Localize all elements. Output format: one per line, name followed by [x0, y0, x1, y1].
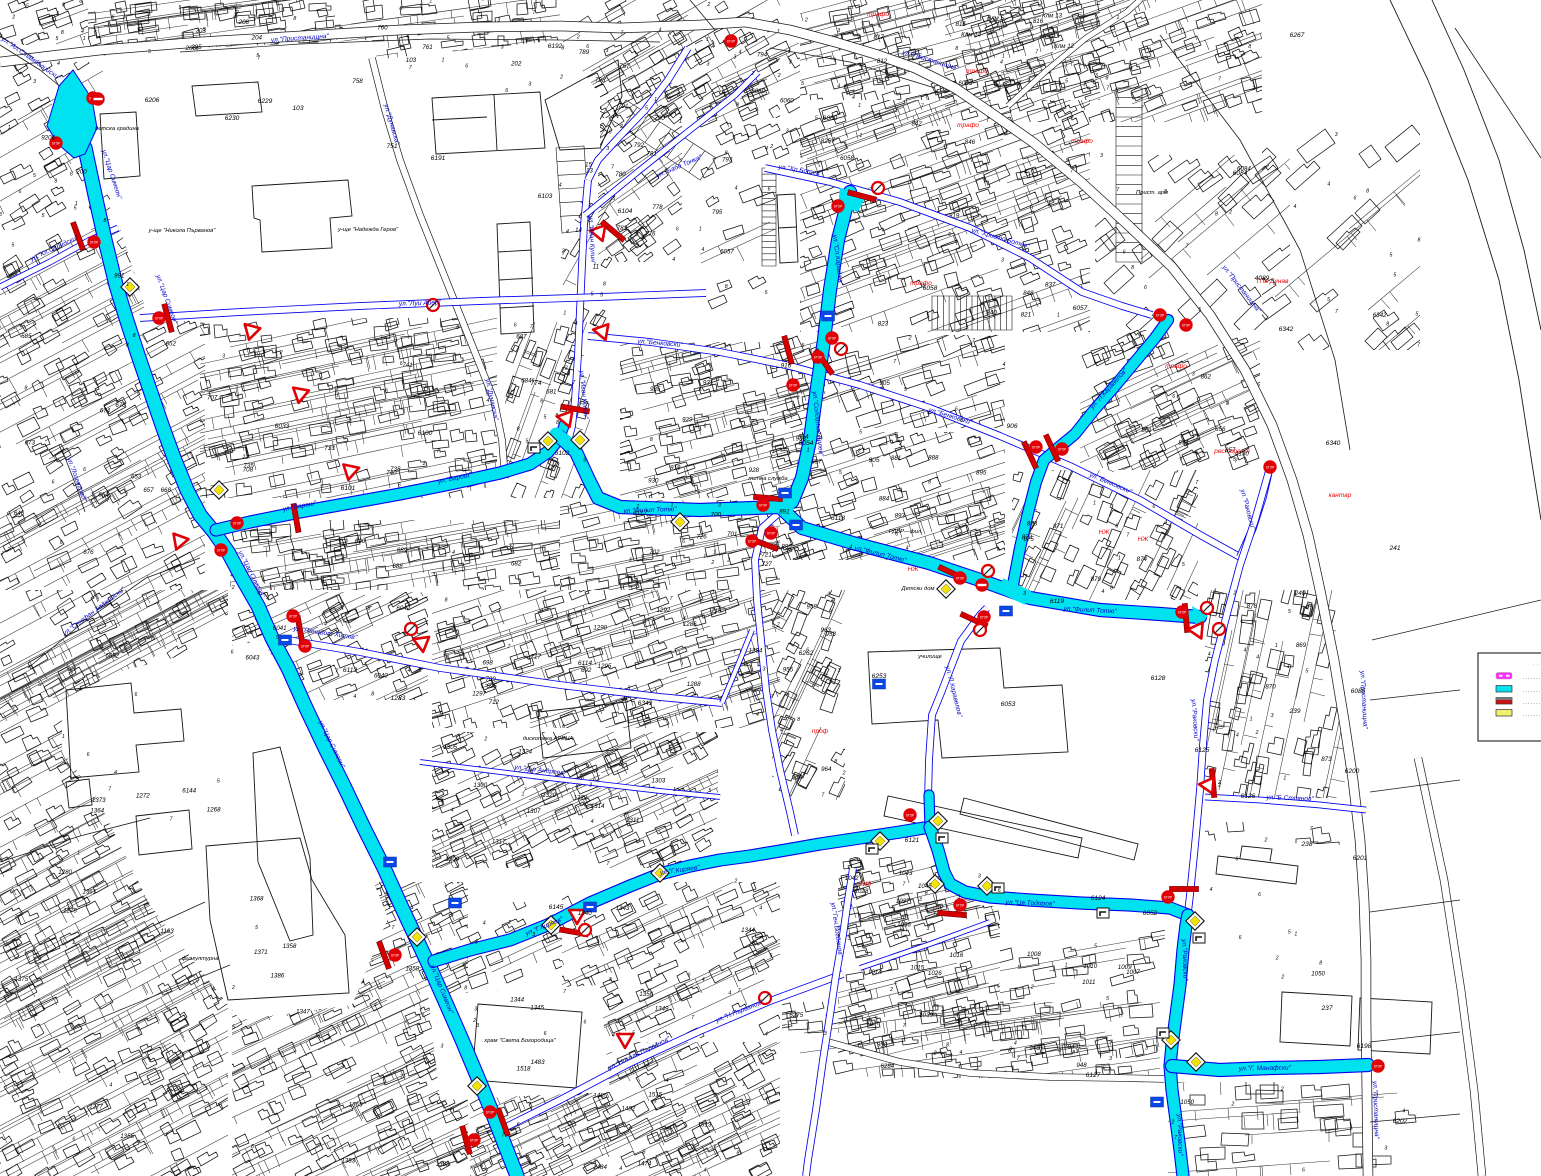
svg-text:1: 1	[713, 549, 716, 555]
svg-text:1: 1	[1093, 501, 1096, 507]
svg-text:1485: 1485	[593, 1093, 607, 1100]
svg-text:6043: 6043	[246, 655, 260, 662]
svg-text:5: 5	[543, 414, 546, 420]
svg-text:8: 8	[1215, 211, 1218, 217]
svg-text:4: 4	[407, 668, 410, 674]
svg-text:5: 5	[632, 1030, 635, 1036]
svg-text:4: 4	[1402, 1108, 1405, 1114]
svg-text:241: 241	[1388, 545, 1400, 552]
svg-text:681: 681	[546, 389, 556, 396]
svg-text:817: 817	[874, 34, 885, 41]
svg-text:5: 5	[447, 35, 450, 41]
svg-text:778: 778	[652, 204, 663, 211]
svg-text:6100: 6100	[418, 430, 433, 437]
svg-text:8: 8	[126, 343, 129, 349]
svg-text:STOP: STOP	[233, 521, 242, 525]
svg-text:905: 905	[868, 457, 879, 464]
svg-text:6: 6	[966, 32, 969, 38]
svg-text:1163: 1163	[160, 928, 174, 935]
svg-text:2: 2	[231, 585, 235, 591]
svg-text:8: 8	[1072, 1050, 1075, 1056]
svg-text:6128: 6128	[1151, 675, 1166, 682]
svg-text:1: 1	[1283, 776, 1286, 782]
svg-text:5: 5	[697, 489, 700, 495]
svg-text:916: 916	[781, 362, 792, 369]
svg-text:6: 6	[1152, 504, 1155, 510]
svg-text:1295: 1295	[598, 663, 612, 670]
svg-text:5: 5	[56, 11, 59, 17]
svg-text:5: 5	[1198, 307, 1201, 313]
svg-text:STOP: STOP	[956, 903, 965, 907]
svg-text:4: 4	[591, 819, 594, 825]
svg-text:8: 8	[456, 325, 459, 331]
svg-text:712: 712	[489, 699, 500, 706]
svg-text:6053: 6053	[1001, 701, 1016, 708]
svg-text:5: 5	[525, 438, 528, 444]
svg-text:2: 2	[231, 985, 235, 991]
svg-text:6: 6	[955, 406, 958, 412]
svg-text:.......: .......	[1522, 713, 1541, 718]
svg-text:8: 8	[104, 218, 107, 224]
svg-text:4: 4	[356, 537, 359, 543]
svg-text:6126: 6126	[1241, 793, 1256, 800]
svg-text:1039: 1039	[919, 1012, 933, 1019]
svg-text:STOP: STOP	[486, 1110, 495, 1114]
svg-text:1: 1	[441, 58, 444, 64]
svg-text:5: 5	[94, 30, 97, 36]
svg-text:5: 5	[26, 3, 29, 9]
svg-text:5: 5	[1288, 609, 1291, 615]
svg-text:4: 4	[712, 44, 715, 50]
svg-text:STOP: STOP	[52, 141, 61, 145]
svg-text:4: 4	[831, 598, 834, 604]
svg-text:2: 2	[1217, 780, 1221, 786]
svg-text:5: 5	[1182, 562, 1185, 568]
svg-text:5: 5	[1390, 253, 1393, 259]
svg-text:4: 4	[780, 728, 783, 734]
svg-text:1: 1	[654, 97, 657, 103]
svg-text:4: 4	[662, 939, 665, 945]
svg-text:3: 3	[629, 558, 632, 564]
svg-text:888: 888	[928, 455, 939, 462]
svg-text:878: 878	[1027, 521, 1038, 528]
svg-text:2: 2	[804, 17, 808, 23]
svg-text:4: 4	[756, 712, 759, 718]
svg-text:5: 5	[1393, 272, 1396, 278]
svg-text:2: 2	[857, 449, 861, 455]
svg-text:STOP: STOP	[748, 539, 757, 543]
svg-text:1009: 1009	[1118, 964, 1132, 971]
svg-text:3: 3	[33, 79, 36, 85]
svg-text:кантар: кантар	[1329, 492, 1352, 499]
svg-text:у-ще "Никола Първанов": у-ще "Никола Първанов"	[148, 228, 217, 234]
svg-text:1: 1	[1083, 82, 1086, 88]
svg-text:794: 794	[757, 51, 768, 58]
svg-text:8: 8	[603, 282, 606, 288]
svg-text:9206: 9206	[41, 135, 55, 142]
svg-text:8: 8	[955, 46, 958, 52]
svg-text:8: 8	[797, 717, 800, 723]
svg-text:НЖ: НЖ	[908, 566, 920, 573]
svg-text:5: 5	[1065, 79, 1068, 85]
svg-text:1: 1	[679, 119, 682, 125]
svg-text:6: 6	[1058, 1048, 1061, 1054]
svg-text:873: 873	[1321, 756, 1332, 763]
svg-text:8: 8	[540, 399, 543, 405]
svg-text:1371: 1371	[254, 949, 268, 956]
svg-text:3: 3	[733, 54, 736, 60]
svg-text:STOP: STOP	[767, 531, 776, 535]
svg-text:870: 870	[1265, 684, 1276, 691]
svg-text:795: 795	[712, 209, 723, 216]
svg-text:6: 6	[768, 186, 771, 192]
svg-text:4: 4	[1000, 60, 1003, 66]
svg-text:869: 869	[1296, 642, 1307, 649]
svg-text:STOP: STOP	[956, 576, 965, 580]
svg-text:931: 931	[703, 379, 713, 386]
svg-text:6: 6	[505, 88, 508, 94]
svg-text:8: 8	[1131, 265, 1134, 271]
svg-text:1: 1	[75, 201, 78, 207]
svg-text:проф: проф	[812, 728, 829, 735]
svg-text:15: 15	[585, 161, 592, 168]
svg-text:6: 6	[465, 63, 468, 69]
svg-text:1388: 1388	[436, 1161, 450, 1168]
svg-text:1: 1	[320, 575, 323, 581]
svg-text:4: 4	[1210, 887, 1213, 893]
svg-text:STOP: STOP	[906, 813, 915, 817]
svg-text:8: 8	[1115, 524, 1118, 530]
svg-text:6: 6	[583, 1019, 586, 1025]
svg-text:1286: 1286	[683, 621, 697, 628]
svg-text:1: 1	[712, 589, 715, 595]
svg-text:2: 2	[241, 455, 245, 461]
svg-text:4: 4	[114, 770, 117, 776]
svg-text:1275: 1275	[63, 908, 77, 915]
svg-text:STOP: STOP	[1164, 895, 1173, 899]
svg-text:6: 6	[895, 532, 898, 538]
svg-text:2: 2	[1171, 1119, 1175, 1125]
svg-text:8: 8	[556, 420, 559, 426]
svg-text:3: 3	[54, 179, 57, 185]
svg-text:1482: 1482	[622, 1106, 636, 1113]
svg-text:8: 8	[642, 1149, 645, 1155]
svg-text:3: 3	[1001, 258, 1004, 264]
svg-text:6343: 6343	[638, 700, 653, 707]
svg-text:5: 5	[255, 925, 258, 931]
svg-text:4: 4	[559, 182, 562, 188]
svg-text:886: 886	[781, 543, 792, 550]
svg-text:862: 862	[1201, 373, 1212, 380]
svg-text:3: 3	[718, 502, 721, 508]
svg-text:STOP: STOP	[289, 614, 298, 618]
svg-text:6200: 6200	[1345, 768, 1360, 775]
svg-text:3: 3	[640, 96, 643, 102]
svg-text:3: 3	[474, 1006, 477, 1012]
svg-text:.......: .......	[1522, 676, 1541, 681]
svg-text:3: 3	[432, 572, 435, 578]
svg-text:STOP: STOP	[217, 548, 226, 552]
svg-text:929: 929	[682, 416, 693, 423]
svg-text:6: 6	[263, 1066, 266, 1072]
svg-text:1474: 1474	[638, 1160, 652, 1167]
svg-text:3: 3	[1145, 1046, 1148, 1052]
svg-text:4: 4	[837, 84, 840, 90]
svg-text:238: 238	[1300, 841, 1312, 848]
svg-text:825: 825	[821, 138, 832, 145]
svg-text:6267: 6267	[1290, 32, 1305, 39]
svg-text:1: 1	[1057, 313, 1060, 319]
svg-text:240: 240	[1293, 590, 1305, 597]
svg-text:6083: 6083	[958, 80, 972, 87]
svg-text:трафо: трафо	[867, 11, 889, 18]
svg-text:1297: 1297	[472, 690, 486, 697]
svg-text:8: 8	[736, 103, 739, 109]
svg-text:6: 6	[1302, 1168, 1305, 1174]
svg-text:930: 930	[648, 477, 659, 484]
svg-text:5: 5	[203, 27, 206, 33]
svg-text:1014: 1014	[868, 969, 882, 976]
svg-text:700: 700	[711, 512, 722, 519]
svg-text:пътна служба: пътна служба	[748, 476, 788, 482]
svg-text:1015: 1015	[910, 964, 924, 971]
svg-text:958: 958	[806, 603, 817, 610]
svg-text:918: 918	[670, 465, 681, 472]
svg-text:6119: 6119	[1050, 598, 1065, 605]
svg-text:трафо: трафо	[957, 122, 979, 129]
svg-text:3: 3	[677, 92, 680, 98]
svg-text:3: 3	[1100, 153, 1103, 159]
svg-text:5: 5	[591, 291, 594, 297]
svg-text:8: 8	[251, 1144, 254, 1150]
svg-text:6: 6	[398, 483, 401, 489]
svg-text:2: 2	[1280, 1087, 1284, 1093]
svg-text:6092: 6092	[105, 653, 119, 660]
svg-text:206: 206	[185, 45, 197, 52]
svg-text:6040: 6040	[374, 673, 388, 680]
svg-text:2: 2	[564, 365, 568, 371]
svg-text:3: 3	[829, 609, 832, 615]
svg-text:1: 1	[941, 1007, 944, 1013]
svg-text:6284: 6284	[880, 1063, 894, 1070]
svg-text:STOP: STOP	[1156, 313, 1165, 317]
svg-text:2: 2	[726, 557, 730, 563]
svg-text:842: 842	[911, 120, 922, 127]
svg-text:780: 780	[615, 171, 626, 178]
svg-text:854: 854	[1178, 440, 1189, 447]
svg-text:6117: 6117	[633, 510, 648, 517]
svg-text:5: 5	[583, 458, 586, 464]
svg-text:5: 5	[801, 343, 804, 349]
svg-text:688: 688	[392, 563, 403, 570]
svg-text:6: 6	[965, 519, 968, 525]
svg-text:6: 6	[385, 388, 388, 394]
svg-text:2: 2	[1280, 975, 1284, 981]
svg-text:6: 6	[79, 0, 82, 5]
svg-text:1: 1	[1065, 962, 1068, 968]
svg-text:ул."Луи Айер": ул."Луи Айер"	[398, 298, 442, 308]
svg-text:6191: 6191	[431, 155, 446, 162]
svg-text:6127: 6127	[1086, 1072, 1101, 1079]
svg-text:6: 6	[544, 1031, 547, 1037]
svg-text:4: 4	[666, 1078, 669, 1084]
svg-text:202: 202	[510, 61, 522, 68]
svg-text:1283: 1283	[391, 695, 406, 702]
svg-text:884: 884	[879, 496, 890, 503]
svg-text:1: 1	[1275, 643, 1278, 649]
svg-text:950: 950	[877, 1041, 888, 1048]
svg-text:3: 3	[789, 60, 792, 66]
svg-text:1483: 1483	[531, 1059, 545, 1066]
svg-text:2: 2	[483, 737, 487, 743]
svg-text:6: 6	[922, 284, 925, 290]
svg-text:6: 6	[1172, 394, 1175, 400]
svg-text:897: 897	[811, 459, 822, 466]
svg-text:6275: 6275	[789, 1012, 803, 1019]
svg-text:8: 8	[25, 385, 28, 391]
svg-text:812: 812	[877, 58, 888, 65]
svg-text:1513: 1513	[698, 1122, 712, 1129]
svg-text:4: 4	[109, 1082, 112, 1088]
svg-text:4: 4	[672, 257, 675, 263]
svg-text:1292: 1292	[656, 607, 670, 614]
svg-text:4: 4	[1244, 647, 1247, 653]
svg-text:3: 3	[927, 926, 930, 932]
svg-text:716: 716	[711, 608, 722, 615]
svg-text:3: 3	[532, 932, 535, 938]
svg-text:5: 5	[801, 81, 804, 87]
svg-text:1028: 1028	[855, 888, 869, 895]
svg-text:6104: 6104	[618, 208, 633, 215]
svg-text:1: 1	[1095, 85, 1098, 91]
svg-text:5: 5	[1327, 297, 1330, 303]
svg-text:3: 3	[627, 685, 630, 691]
svg-text:6085: 6085	[1351, 688, 1366, 695]
svg-text:6: 6	[231, 650, 234, 656]
svg-text:875: 875	[1023, 536, 1034, 543]
svg-text:664: 664	[98, 491, 109, 498]
svg-text:891: 891	[779, 508, 789, 515]
svg-text:1350: 1350	[639, 991, 653, 998]
svg-text:Клм 14: Клм 14	[961, 31, 982, 38]
svg-text:3: 3	[658, 963, 661, 969]
svg-text:4: 4	[566, 229, 569, 235]
svg-text:1: 1	[715, 102, 718, 108]
svg-text:3: 3	[837, 28, 840, 34]
svg-text:1: 1	[444, 714, 447, 720]
svg-text:STOP: STOP	[759, 503, 768, 507]
svg-text:8: 8	[1164, 189, 1167, 195]
svg-text:6060: 6060	[751, 88, 765, 95]
svg-text:1347: 1347	[296, 1009, 310, 1016]
svg-text:STOP: STOP	[1178, 610, 1187, 614]
svg-text:792: 792	[634, 142, 645, 149]
svg-text:6: 6	[1144, 285, 1147, 291]
svg-text:652: 652	[166, 340, 177, 347]
svg-text:702: 702	[649, 549, 660, 556]
svg-text:6: 6	[87, 752, 90, 758]
svg-text:4: 4	[1014, 1040, 1017, 1046]
svg-text:4: 4	[1003, 362, 1006, 368]
svg-text:1042: 1042	[845, 875, 859, 882]
svg-text:881: 881	[891, 455, 901, 462]
svg-text:2: 2	[710, 560, 714, 566]
svg-text:3: 3	[1076, 1049, 1079, 1055]
svg-text:6: 6	[806, 647, 809, 653]
svg-text:1: 1	[838, 668, 841, 674]
svg-text:4130: 4130	[1235, 451, 1249, 458]
svg-text:928: 928	[749, 467, 760, 474]
svg-text:6058: 6058	[840, 155, 854, 162]
svg-text:6: 6	[1258, 892, 1261, 898]
svg-text:2: 2	[889, 987, 893, 993]
svg-text:6340: 6340	[1326, 440, 1341, 447]
svg-text:1011: 1011	[1082, 979, 1095, 986]
svg-text:8: 8	[725, 150, 728, 156]
svg-text:4: 4	[1256, 655, 1259, 661]
svg-text:821: 821	[1021, 312, 1031, 319]
svg-text:856: 856	[1215, 426, 1226, 433]
svg-text:758: 758	[352, 78, 363, 85]
svg-text:2: 2	[908, 335, 912, 341]
svg-text:2: 2	[11, 15, 15, 21]
svg-text:1305: 1305	[443, 744, 457, 751]
svg-text:5: 5	[612, 196, 615, 202]
svg-text:676: 676	[83, 549, 94, 556]
svg-text:6057: 6057	[1073, 305, 1088, 312]
svg-text:692: 692	[581, 667, 592, 674]
svg-text:3: 3	[654, 1099, 657, 1105]
svg-text:673: 673	[25, 439, 36, 446]
svg-text:13: 13	[586, 168, 593, 175]
svg-text:788: 788	[595, 77, 606, 84]
svg-text:8: 8	[62, 3, 65, 9]
svg-text:791: 791	[618, 103, 628, 110]
svg-text:848: 848	[1023, 290, 1034, 297]
svg-text:2: 2	[1255, 730, 1259, 736]
svg-text:1386: 1386	[270, 972, 284, 979]
svg-text:1277: 1277	[89, 1103, 103, 1110]
svg-text:893: 893	[895, 512, 906, 519]
svg-text:8: 8	[1386, 321, 1389, 327]
svg-text:1303: 1303	[651, 777, 665, 784]
svg-text:751: 751	[386, 143, 397, 150]
svg-text:6: 6	[1235, 856, 1238, 862]
svg-text:239: 239	[1288, 708, 1300, 715]
svg-text:1: 1	[703, 554, 706, 560]
svg-text:НЖ: НЖ	[1099, 529, 1111, 536]
svg-text:1026: 1026	[928, 970, 942, 977]
svg-text:1: 1	[777, 29, 780, 35]
svg-text:6: 6	[83, 467, 86, 473]
svg-text:846: 846	[965, 139, 976, 146]
svg-text:6103: 6103	[538, 193, 553, 200]
svg-text:1340: 1340	[578, 910, 592, 917]
svg-text:2: 2	[1231, 1102, 1235, 1108]
svg-text:8: 8	[725, 284, 728, 290]
svg-text:STOP: STOP	[1266, 465, 1275, 469]
svg-text:5: 5	[1305, 669, 1308, 675]
svg-text:709: 709	[485, 676, 496, 683]
svg-text:1: 1	[788, 49, 791, 55]
svg-text:1: 1	[673, 787, 676, 793]
svg-text:103: 103	[292, 105, 303, 112]
svg-text:879: 879	[1091, 576, 1102, 583]
svg-text:4: 4	[656, 751, 659, 757]
svg-text:5: 5	[1018, 965, 1021, 971]
svg-text:823: 823	[878, 320, 889, 327]
svg-text:6: 6	[19, 189, 22, 195]
